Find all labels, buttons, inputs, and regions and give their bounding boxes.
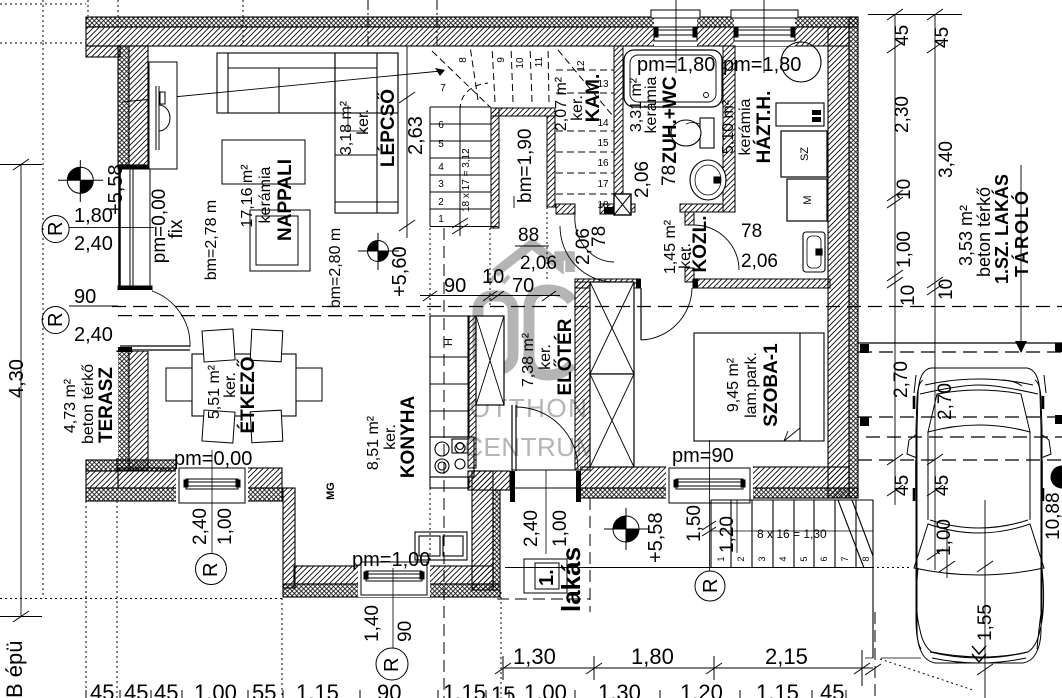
svg-text:1,00: 1,00 <box>524 680 567 698</box>
svg-text:18: 18 <box>597 200 609 211</box>
svg-text:B épü: B épü <box>2 641 27 698</box>
svg-text:10,88: 10,88 <box>1043 492 1062 540</box>
svg-text:2,40: 2,40 <box>74 233 113 255</box>
svg-text:1,30: 1,30 <box>598 680 641 698</box>
svg-text:17,16 m²: 17,16 m² <box>239 164 256 228</box>
svg-text:8,51 m²: 8,51 m² <box>365 415 382 470</box>
svg-text:ker.: ker. <box>222 372 239 398</box>
svg-text:1,50: 1,50 <box>684 505 705 542</box>
svg-text:3,53 m²: 3,53 m² <box>956 205 976 266</box>
svg-text:90: 90 <box>74 286 96 308</box>
svg-text:15: 15 <box>597 138 609 149</box>
svg-text:beton térkő: beton térkő <box>80 364 97 444</box>
svg-text:+5,60: +5,60 <box>389 246 411 297</box>
svg-text:1,40: 1,40 <box>362 605 383 642</box>
svg-text:kerámia: kerámia <box>643 76 660 133</box>
svg-text:R: R <box>45 222 67 236</box>
svg-text:9,45 m²: 9,45 m² <box>725 357 742 412</box>
svg-text:2: 2 <box>438 197 444 208</box>
svg-text:10: 10 <box>898 285 919 306</box>
svg-text:1,00: 1,00 <box>550 510 571 547</box>
svg-text:17: 17 <box>597 179 609 190</box>
svg-text:88: 88 <box>518 225 539 246</box>
svg-text:ker.: ker. <box>677 243 694 269</box>
svg-text:kerámia: kerámia <box>737 98 754 155</box>
svg-text:45: 45 <box>90 680 114 698</box>
svg-text:3,18 m²: 3,18 m² <box>338 100 355 155</box>
svg-text:8 x 16 = 1,30: 8 x 16 = 1,30 <box>757 527 827 541</box>
svg-text:2,06: 2,06 <box>632 161 653 198</box>
svg-text:3,40: 3,40 <box>936 141 957 178</box>
svg-text:pm=90: pm=90 <box>672 445 734 467</box>
svg-text:10: 10 <box>482 266 504 288</box>
svg-text:7: 7 <box>440 83 446 94</box>
svg-text:18 x 17 = 3,12: 18 x 17 = 3,12 <box>461 148 472 212</box>
svg-text:5: 5 <box>799 556 809 561</box>
svg-text:7: 7 <box>840 556 850 561</box>
svg-text:HÁZT.H.: HÁZT.H. <box>753 91 775 164</box>
svg-text:90: 90 <box>395 621 416 642</box>
svg-text:1,45 m²: 1,45 m² <box>662 219 679 274</box>
svg-text:4,73 m²: 4,73 m² <box>62 378 79 433</box>
svg-text:5,10 m²: 5,10 m² <box>720 99 737 154</box>
svg-text:6: 6 <box>438 120 444 131</box>
svg-text:TÁROLÓ: TÁROLÓ <box>1011 189 1032 277</box>
svg-text:bm=1,90: bm=1,90 <box>515 129 536 203</box>
svg-text:8: 8 <box>458 57 469 63</box>
svg-text:1,00: 1,00 <box>215 508 236 545</box>
svg-text:bm=2,80 m: bm=2,80 m <box>327 228 344 308</box>
svg-text:1,20: 1,20 <box>680 680 723 698</box>
svg-text:ker.: ker. <box>569 95 586 121</box>
svg-text:2,07 m²: 2,07 m² <box>553 76 570 131</box>
svg-text:5: 5 <box>438 139 444 150</box>
svg-text:78: 78 <box>741 221 762 242</box>
svg-text:10: 10 <box>894 179 915 200</box>
svg-text:1,00: 1,00 <box>894 231 915 268</box>
svg-text:pm=0,00: pm=0,00 <box>174 448 252 470</box>
svg-text:55: 55 <box>252 680 276 698</box>
svg-text:4: 4 <box>778 556 788 561</box>
svg-text:M: M <box>802 195 814 204</box>
svg-text:1,80: 1,80 <box>631 644 674 669</box>
svg-text:4: 4 <box>438 162 444 173</box>
svg-text:1,00: 1,00 <box>934 519 955 556</box>
svg-text:1: 1 <box>716 556 726 561</box>
svg-text:pm=0,00: pm=0,00 <box>149 189 170 263</box>
svg-text:2,40: 2,40 <box>521 510 542 547</box>
svg-text:KONYHA: KONYHA <box>398 396 419 479</box>
svg-text:LÉPCSŐ: LÉPCSŐ <box>377 89 399 167</box>
svg-text:2,15: 2,15 <box>765 644 808 669</box>
svg-text:1,15: 1,15 <box>756 680 799 698</box>
svg-text:45: 45 <box>932 27 953 48</box>
svg-text:2,06: 2,06 <box>520 253 557 274</box>
svg-text:6: 6 <box>819 556 829 561</box>
svg-text:R: R <box>45 313 67 327</box>
svg-text:10: 10 <box>936 279 957 300</box>
svg-text:90: 90 <box>377 680 401 698</box>
svg-text:R: R <box>700 579 722 593</box>
svg-text:ZUH.+WC: ZUH.+WC <box>660 76 681 163</box>
svg-text:2,06: 2,06 <box>573 228 594 265</box>
svg-text:1,15: 1,15 <box>296 680 339 698</box>
svg-text:2,06: 2,06 <box>741 251 778 272</box>
svg-text:7,38 m²: 7,38 m² <box>520 332 537 387</box>
svg-text:78: 78 <box>659 165 680 186</box>
svg-text:TERASZ: TERASZ <box>96 367 117 443</box>
svg-text:SZOBA-1: SZOBA-1 <box>761 343 782 427</box>
svg-text:3: 3 <box>438 179 444 190</box>
svg-text:1: 1 <box>438 214 444 225</box>
svg-text:SZ: SZ <box>799 147 811 161</box>
svg-text:1,00: 1,00 <box>194 680 237 698</box>
svg-text:1,30: 1,30 <box>513 644 556 669</box>
svg-text:2,70: 2,70 <box>891 361 912 398</box>
svg-text:2,30: 2,30 <box>892 96 913 133</box>
svg-text:lakás: lakás <box>556 547 586 612</box>
svg-text:1,20: 1,20 <box>717 516 738 553</box>
svg-text:11: 11 <box>534 56 545 67</box>
svg-text:90: 90 <box>444 275 466 297</box>
svg-text:2,63: 2,63 <box>405 116 427 155</box>
svg-text:H: H <box>443 338 455 346</box>
svg-text:kerámia: kerámia <box>257 166 274 223</box>
svg-text:+5,58: +5,58 <box>105 164 127 215</box>
svg-text:KAM.: KAM. <box>583 74 604 123</box>
svg-text:ker.: ker. <box>537 344 554 370</box>
svg-text:lam.park.: lam.park. <box>743 352 760 418</box>
svg-text:pm=1,80: pm=1,80 <box>723 54 801 76</box>
svg-text:beton térkő: beton térkő <box>974 187 994 277</box>
svg-text:bm=2,78 m: bm=2,78 m <box>203 200 220 280</box>
svg-text:ker.: ker. <box>382 424 399 450</box>
svg-text:2,40: 2,40 <box>74 324 113 346</box>
svg-text:1.SZ. LAKÁS: 1.SZ. LAKÁS <box>991 174 1012 284</box>
svg-text:ÉTKEZŐ: ÉTKEZŐ <box>237 356 259 433</box>
svg-text:R: R <box>381 658 403 672</box>
svg-text:2,40: 2,40 <box>190 508 211 545</box>
svg-text:4,30: 4,30 <box>6 359 28 398</box>
svg-text:16: 16 <box>597 158 609 169</box>
svg-text:pm=1,00: pm=1,00 <box>352 549 430 571</box>
svg-text:70: 70 <box>512 275 534 297</box>
svg-text:45: 45 <box>932 475 953 496</box>
svg-text:5,51 m²: 5,51 m² <box>206 364 223 419</box>
svg-text:15: 15 <box>491 682 515 698</box>
svg-text:NAPPALI: NAPPALI <box>275 159 296 241</box>
svg-text:2: 2 <box>736 556 746 561</box>
svg-text:1,15: 1,15 <box>443 680 486 698</box>
svg-text:45: 45 <box>892 25 913 46</box>
svg-text:+5,58: +5,58 <box>645 512 667 563</box>
svg-text:3: 3 <box>757 556 767 561</box>
svg-text:9: 9 <box>496 57 507 63</box>
svg-text:8: 8 <box>861 556 871 561</box>
svg-text:45: 45 <box>124 680 148 698</box>
svg-text:MG: MG <box>325 482 337 500</box>
svg-text:45: 45 <box>154 680 178 698</box>
svg-text:3,31 m²: 3,31 m² <box>628 77 645 132</box>
svg-text:10: 10 <box>515 57 526 69</box>
svg-text:R: R <box>200 563 222 577</box>
svg-text:45: 45 <box>892 475 913 496</box>
svg-text:ELŐTÉR: ELŐTÉR <box>554 318 576 395</box>
svg-text:1,55: 1,55 <box>975 604 996 641</box>
svg-text:45: 45 <box>820 680 844 698</box>
svg-text:1.: 1. <box>536 569 558 586</box>
